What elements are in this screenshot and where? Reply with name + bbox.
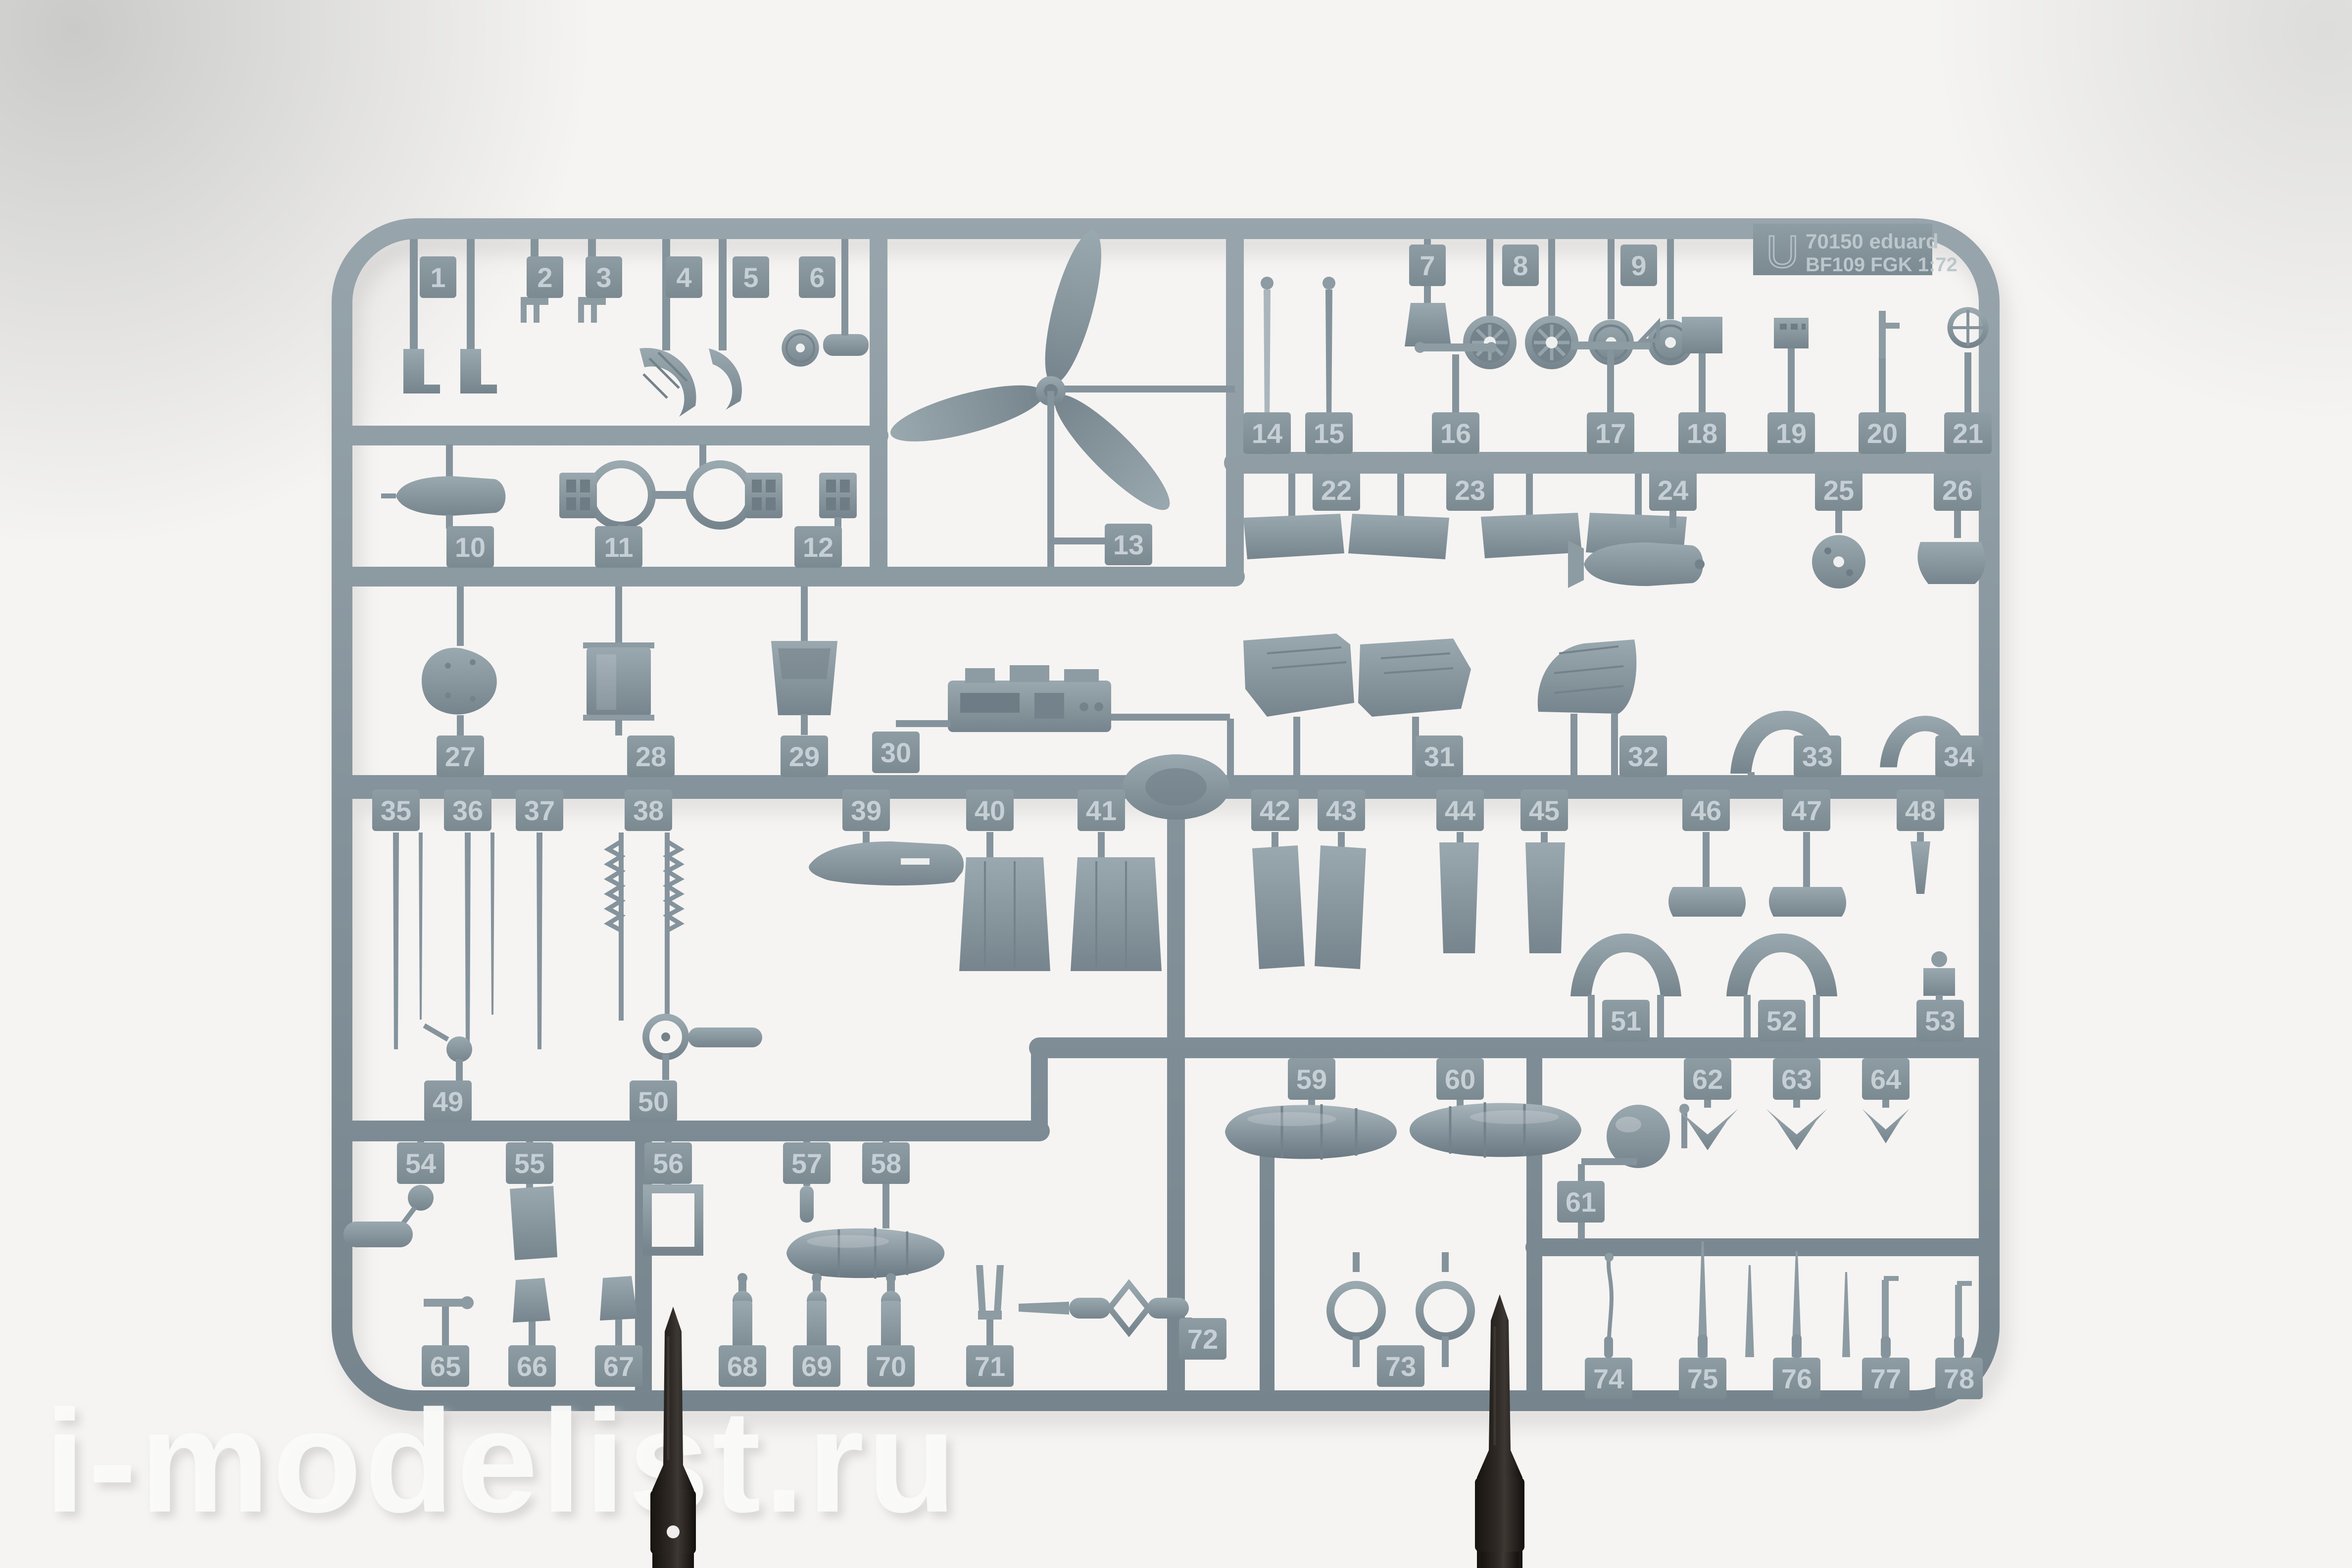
svg-text:1: 1 xyxy=(430,262,445,293)
part-tag: 50 xyxy=(630,1080,677,1122)
svg-text:72: 72 xyxy=(1187,1323,1218,1355)
svg-text:12: 12 xyxy=(803,532,833,563)
svg-text:9: 9 xyxy=(1631,250,1646,281)
svg-text:57: 57 xyxy=(791,1148,822,1179)
svg-text:50: 50 xyxy=(638,1086,669,1117)
part-tag: 11 xyxy=(595,526,642,568)
svg-text:38: 38 xyxy=(633,795,664,826)
part-tag: 57 xyxy=(783,1142,831,1184)
part-tag: 55 xyxy=(506,1142,553,1184)
svg-text:14: 14 xyxy=(1252,418,1282,449)
svg-text:44: 44 xyxy=(1445,795,1475,826)
part-tag: 37 xyxy=(516,789,563,831)
part-tag: 58 xyxy=(862,1142,910,1184)
part-tag: 7 xyxy=(1409,245,1446,286)
svg-text:61: 61 xyxy=(1566,1186,1596,1218)
part-tag: 19 xyxy=(1767,412,1815,454)
part-tag: 56 xyxy=(644,1142,692,1184)
svg-text:56: 56 xyxy=(653,1148,684,1179)
part-tag: 48 xyxy=(1897,789,1944,831)
part-tag: 63 xyxy=(1773,1058,1820,1100)
part-tag: 72 xyxy=(1179,1318,1226,1360)
svg-text:49: 49 xyxy=(433,1086,463,1117)
svg-text:19: 19 xyxy=(1776,418,1807,449)
part-tag: 39 xyxy=(842,789,890,831)
svg-text:74: 74 xyxy=(1593,1363,1624,1394)
label-plate: U 70150 eduard BF109 FGK 1:72 xyxy=(1753,224,1958,277)
svg-text:4: 4 xyxy=(676,262,691,293)
svg-text:17: 17 xyxy=(1595,418,1626,449)
svg-text:59: 59 xyxy=(1296,1064,1327,1095)
part-tag: 53 xyxy=(1916,1000,1964,1041)
svg-text:23: 23 xyxy=(1455,475,1485,506)
svg-text:71: 71 xyxy=(975,1351,1005,1382)
svg-text:52: 52 xyxy=(1766,1005,1797,1036)
part-tag: 73 xyxy=(1377,1345,1424,1387)
part-tag: 17 xyxy=(1587,412,1634,454)
svg-text:i-modelist.ru: i-modelist.ru xyxy=(45,1379,959,1543)
part-tag: 12 xyxy=(794,526,842,568)
part-tag: 24 xyxy=(1649,469,1697,511)
svg-text:28: 28 xyxy=(636,741,666,772)
svg-text:78: 78 xyxy=(1944,1363,1974,1394)
svg-text:15: 15 xyxy=(1314,418,1344,449)
part-tag: 35 xyxy=(372,789,420,831)
svg-text:21: 21 xyxy=(1953,418,1983,449)
part-tag: 34 xyxy=(1935,735,1983,777)
svg-text:77: 77 xyxy=(1870,1363,1901,1394)
part-tag: 18 xyxy=(1678,412,1726,454)
svg-text:13: 13 xyxy=(1113,529,1144,560)
svg-text:16: 16 xyxy=(1440,418,1471,449)
part-tag: 77 xyxy=(1862,1358,1910,1399)
svg-text:36: 36 xyxy=(452,795,483,826)
part-tag: 26 xyxy=(1934,469,1981,511)
part-tag: 28 xyxy=(627,735,675,777)
svg-text:8: 8 xyxy=(1513,250,1528,281)
svg-text:69: 69 xyxy=(801,1351,832,1382)
part-tag: 64 xyxy=(1862,1058,1910,1100)
svg-text:41: 41 xyxy=(1086,795,1117,826)
svg-text:30: 30 xyxy=(881,737,911,768)
svg-text:31: 31 xyxy=(1424,741,1455,772)
svg-text:2: 2 xyxy=(537,262,552,293)
svg-text:22: 22 xyxy=(1321,475,1352,506)
part-tag: 33 xyxy=(1794,735,1841,777)
label-line1: 70150 eduard xyxy=(1806,230,1939,253)
svg-text:51: 51 xyxy=(1611,1005,1641,1036)
watermark: i-modelist.ru i-modelist.ru xyxy=(45,1379,964,1549)
part-tag: 62 xyxy=(1684,1058,1731,1100)
part-tag: 13 xyxy=(1105,524,1152,565)
svg-text:6: 6 xyxy=(809,262,825,293)
part-tag: 15 xyxy=(1305,412,1353,454)
svg-text:26: 26 xyxy=(1942,475,1973,506)
part-tag: 32 xyxy=(1619,735,1667,777)
part-tag: 20 xyxy=(1859,412,1906,454)
svg-text:24: 24 xyxy=(1658,475,1688,506)
svg-text:76: 76 xyxy=(1781,1363,1812,1394)
label-letter: U xyxy=(1766,227,1799,277)
part-tag: 51 xyxy=(1602,1000,1650,1041)
part-tag: 9 xyxy=(1620,245,1657,286)
part-tag: 22 xyxy=(1313,469,1360,511)
part-tag: 8 xyxy=(1502,245,1539,286)
svg-text:58: 58 xyxy=(871,1148,901,1179)
part-tag: 6 xyxy=(799,256,835,298)
part-tag: 5 xyxy=(733,256,769,298)
part-tag: 49 xyxy=(424,1080,472,1122)
part-tag: 3 xyxy=(586,256,622,298)
svg-text:64: 64 xyxy=(1870,1064,1901,1095)
svg-text:27: 27 xyxy=(445,741,476,772)
svg-text:75: 75 xyxy=(1687,1363,1718,1394)
svg-text:33: 33 xyxy=(1802,741,1833,772)
svg-text:25: 25 xyxy=(1823,475,1854,506)
svg-text:46: 46 xyxy=(1691,795,1721,826)
part-tag: 78 xyxy=(1935,1358,1983,1399)
svg-text:47: 47 xyxy=(1791,795,1822,826)
part-tag: 60 xyxy=(1436,1058,1484,1100)
part-tag: 54 xyxy=(397,1142,444,1184)
svg-text:37: 37 xyxy=(524,795,555,826)
svg-text:66: 66 xyxy=(517,1351,547,1382)
part-tag: 74 xyxy=(1585,1358,1632,1399)
part-tag: 23 xyxy=(1446,469,1494,511)
part-tag: 42 xyxy=(1251,789,1299,831)
svg-text:48: 48 xyxy=(1905,795,1936,826)
part-tag: 45 xyxy=(1520,789,1568,831)
svg-text:5: 5 xyxy=(743,262,758,293)
part-tag: 59 xyxy=(1288,1058,1335,1100)
part-tag: 31 xyxy=(1416,735,1463,777)
svg-text:39: 39 xyxy=(851,795,882,826)
svg-text:62: 62 xyxy=(1692,1064,1723,1095)
runner-hub xyxy=(1123,754,1229,820)
photo-stage: U 70150 eduard BF109 FGK 1:72 xyxy=(0,0,2352,1568)
svg-text:34: 34 xyxy=(1944,741,1974,772)
svg-text:63: 63 xyxy=(1781,1064,1812,1095)
svg-text:20: 20 xyxy=(1867,418,1898,449)
part-tag: 29 xyxy=(781,735,828,777)
svg-text:42: 42 xyxy=(1260,795,1290,826)
svg-text:11: 11 xyxy=(604,532,633,563)
svg-text:60: 60 xyxy=(1445,1064,1475,1095)
svg-text:68: 68 xyxy=(727,1351,758,1382)
part-tag: 75 xyxy=(1679,1358,1726,1399)
part-tag: 76 xyxy=(1773,1358,1820,1399)
part-tag: 43 xyxy=(1318,789,1365,831)
part-tag: 40 xyxy=(966,789,1014,831)
part-tag: 61 xyxy=(1557,1181,1605,1223)
part-tag: 47 xyxy=(1783,789,1830,831)
svg-text:18: 18 xyxy=(1687,418,1717,449)
svg-text:32: 32 xyxy=(1628,741,1659,772)
part-tag: 25 xyxy=(1815,469,1862,511)
svg-text:29: 29 xyxy=(789,741,820,772)
part-tag: 21 xyxy=(1944,412,1992,454)
svg-text:53: 53 xyxy=(1925,1005,1956,1036)
part-tag: 1 xyxy=(420,256,456,298)
svg-text:70: 70 xyxy=(876,1351,906,1382)
svg-text:45: 45 xyxy=(1529,795,1560,826)
part-tag: 36 xyxy=(444,789,491,831)
svg-text:7: 7 xyxy=(1420,250,1435,281)
part-tag: 52 xyxy=(1758,1000,1806,1041)
part-tag: 41 xyxy=(1078,789,1125,831)
part-tag: 46 xyxy=(1682,789,1730,831)
svg-text:54: 54 xyxy=(405,1148,436,1179)
part-tag: 16 xyxy=(1432,412,1479,454)
svg-text:40: 40 xyxy=(975,795,1005,826)
part-tag: 2 xyxy=(527,256,563,298)
part-tag: 30 xyxy=(872,732,920,773)
svg-text:65: 65 xyxy=(430,1351,461,1382)
svg-text:10: 10 xyxy=(455,532,486,563)
part-tag: 10 xyxy=(446,526,494,568)
part-tag: 71 xyxy=(966,1345,1014,1387)
part-tag: 27 xyxy=(437,735,484,777)
part-tag: 4 xyxy=(666,256,702,298)
svg-text:67: 67 xyxy=(603,1351,634,1382)
part-tag: 44 xyxy=(1436,789,1484,831)
svg-text:73: 73 xyxy=(1385,1351,1416,1382)
label-line2: BF109 FGK 1:72 xyxy=(1806,254,1958,276)
sprue-photo: U 70150 eduard BF109 FGK 1:72 xyxy=(0,0,2352,1568)
svg-text:55: 55 xyxy=(514,1148,545,1179)
part-tag: 14 xyxy=(1243,412,1291,454)
svg-text:43: 43 xyxy=(1326,795,1357,826)
svg-text:35: 35 xyxy=(381,795,411,826)
part-tag: 38 xyxy=(625,789,672,831)
svg-text:3: 3 xyxy=(596,262,611,293)
